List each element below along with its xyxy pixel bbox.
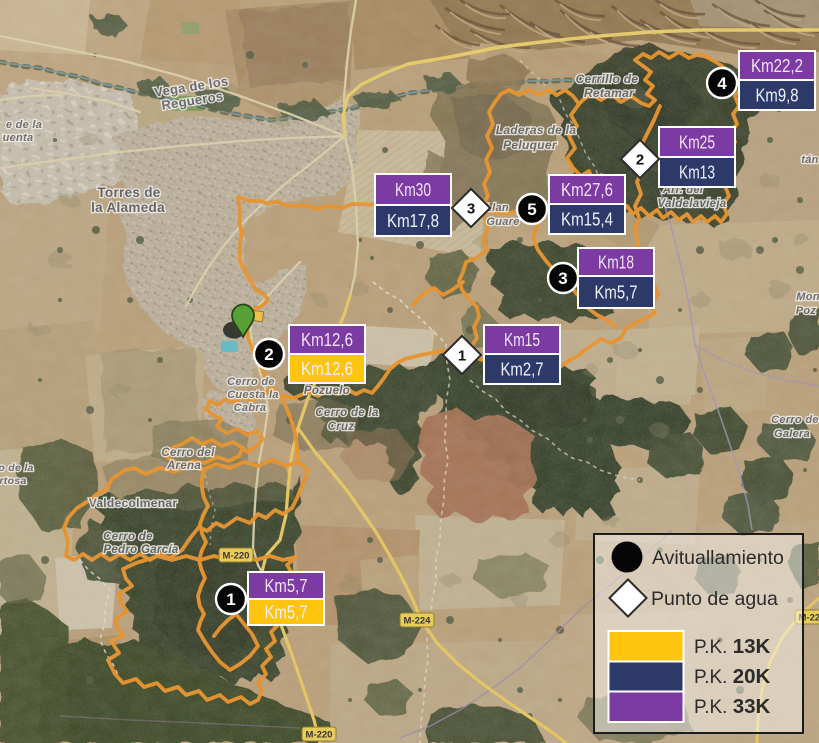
svg-text:Km13: Km13	[679, 161, 715, 182]
svg-text:Km5,7: Km5,7	[595, 281, 638, 302]
svg-text:Km18: Km18	[598, 251, 634, 272]
svg-text:4: 4	[717, 74, 727, 93]
svg-text:5: 5	[527, 200, 536, 219]
svg-text:2: 2	[636, 152, 644, 169]
svg-text:1: 1	[458, 348, 466, 365]
svg-text:Km27,6: Km27,6	[561, 179, 613, 200]
svg-text:P.K. 20K: P.K. 20K	[694, 665, 771, 688]
svg-text:Km17,8: Km17,8	[387, 210, 439, 231]
svg-text:3: 3	[558, 269, 567, 288]
svg-text:Punto de agua: Punto de agua	[651, 588, 778, 610]
svg-text:Km12,6: Km12,6	[301, 358, 353, 379]
svg-text:Km30: Km30	[395, 179, 431, 200]
svg-text:Km2,7: Km2,7	[501, 358, 544, 379]
svg-text:Km12,6: Km12,6	[301, 329, 353, 350]
svg-text:Km15: Km15	[504, 329, 540, 350]
svg-text:3: 3	[467, 201, 475, 218]
svg-text:Avituallamiento: Avituallamiento	[652, 547, 784, 569]
svg-text:2: 2	[264, 345, 273, 364]
svg-text:Km22,2: Km22,2	[751, 55, 803, 76]
svg-text:Km5,7: Km5,7	[265, 601, 308, 622]
svg-text:Km15,4: Km15,4	[561, 208, 613, 229]
svg-text:1: 1	[226, 590, 235, 609]
svg-text:P.K. 33K: P.K. 33K	[694, 695, 771, 718]
svg-text:P.K. 13K: P.K. 13K	[694, 635, 771, 658]
svg-text:Km25: Km25	[679, 131, 715, 152]
svg-text:Km9,8: Km9,8	[756, 84, 799, 105]
svg-text:Km5,7: Km5,7	[265, 575, 308, 596]
